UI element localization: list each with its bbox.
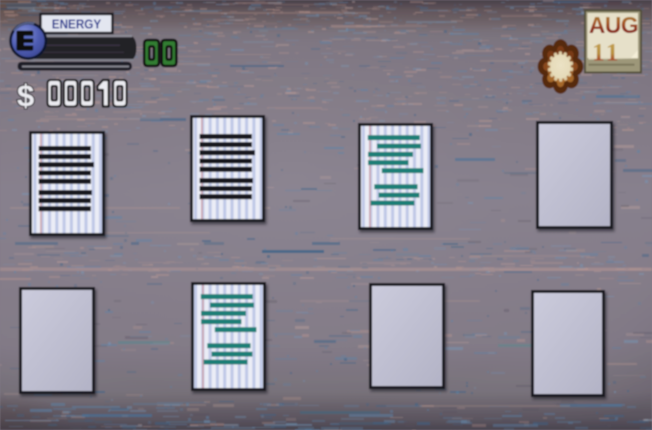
svg-text:ENERGY: ENERGY [52,17,101,31]
svg-text:$: $ [17,78,34,113]
svg-text:11: 11 [592,38,621,67]
svg-text:AUG: AUG [589,12,638,38]
